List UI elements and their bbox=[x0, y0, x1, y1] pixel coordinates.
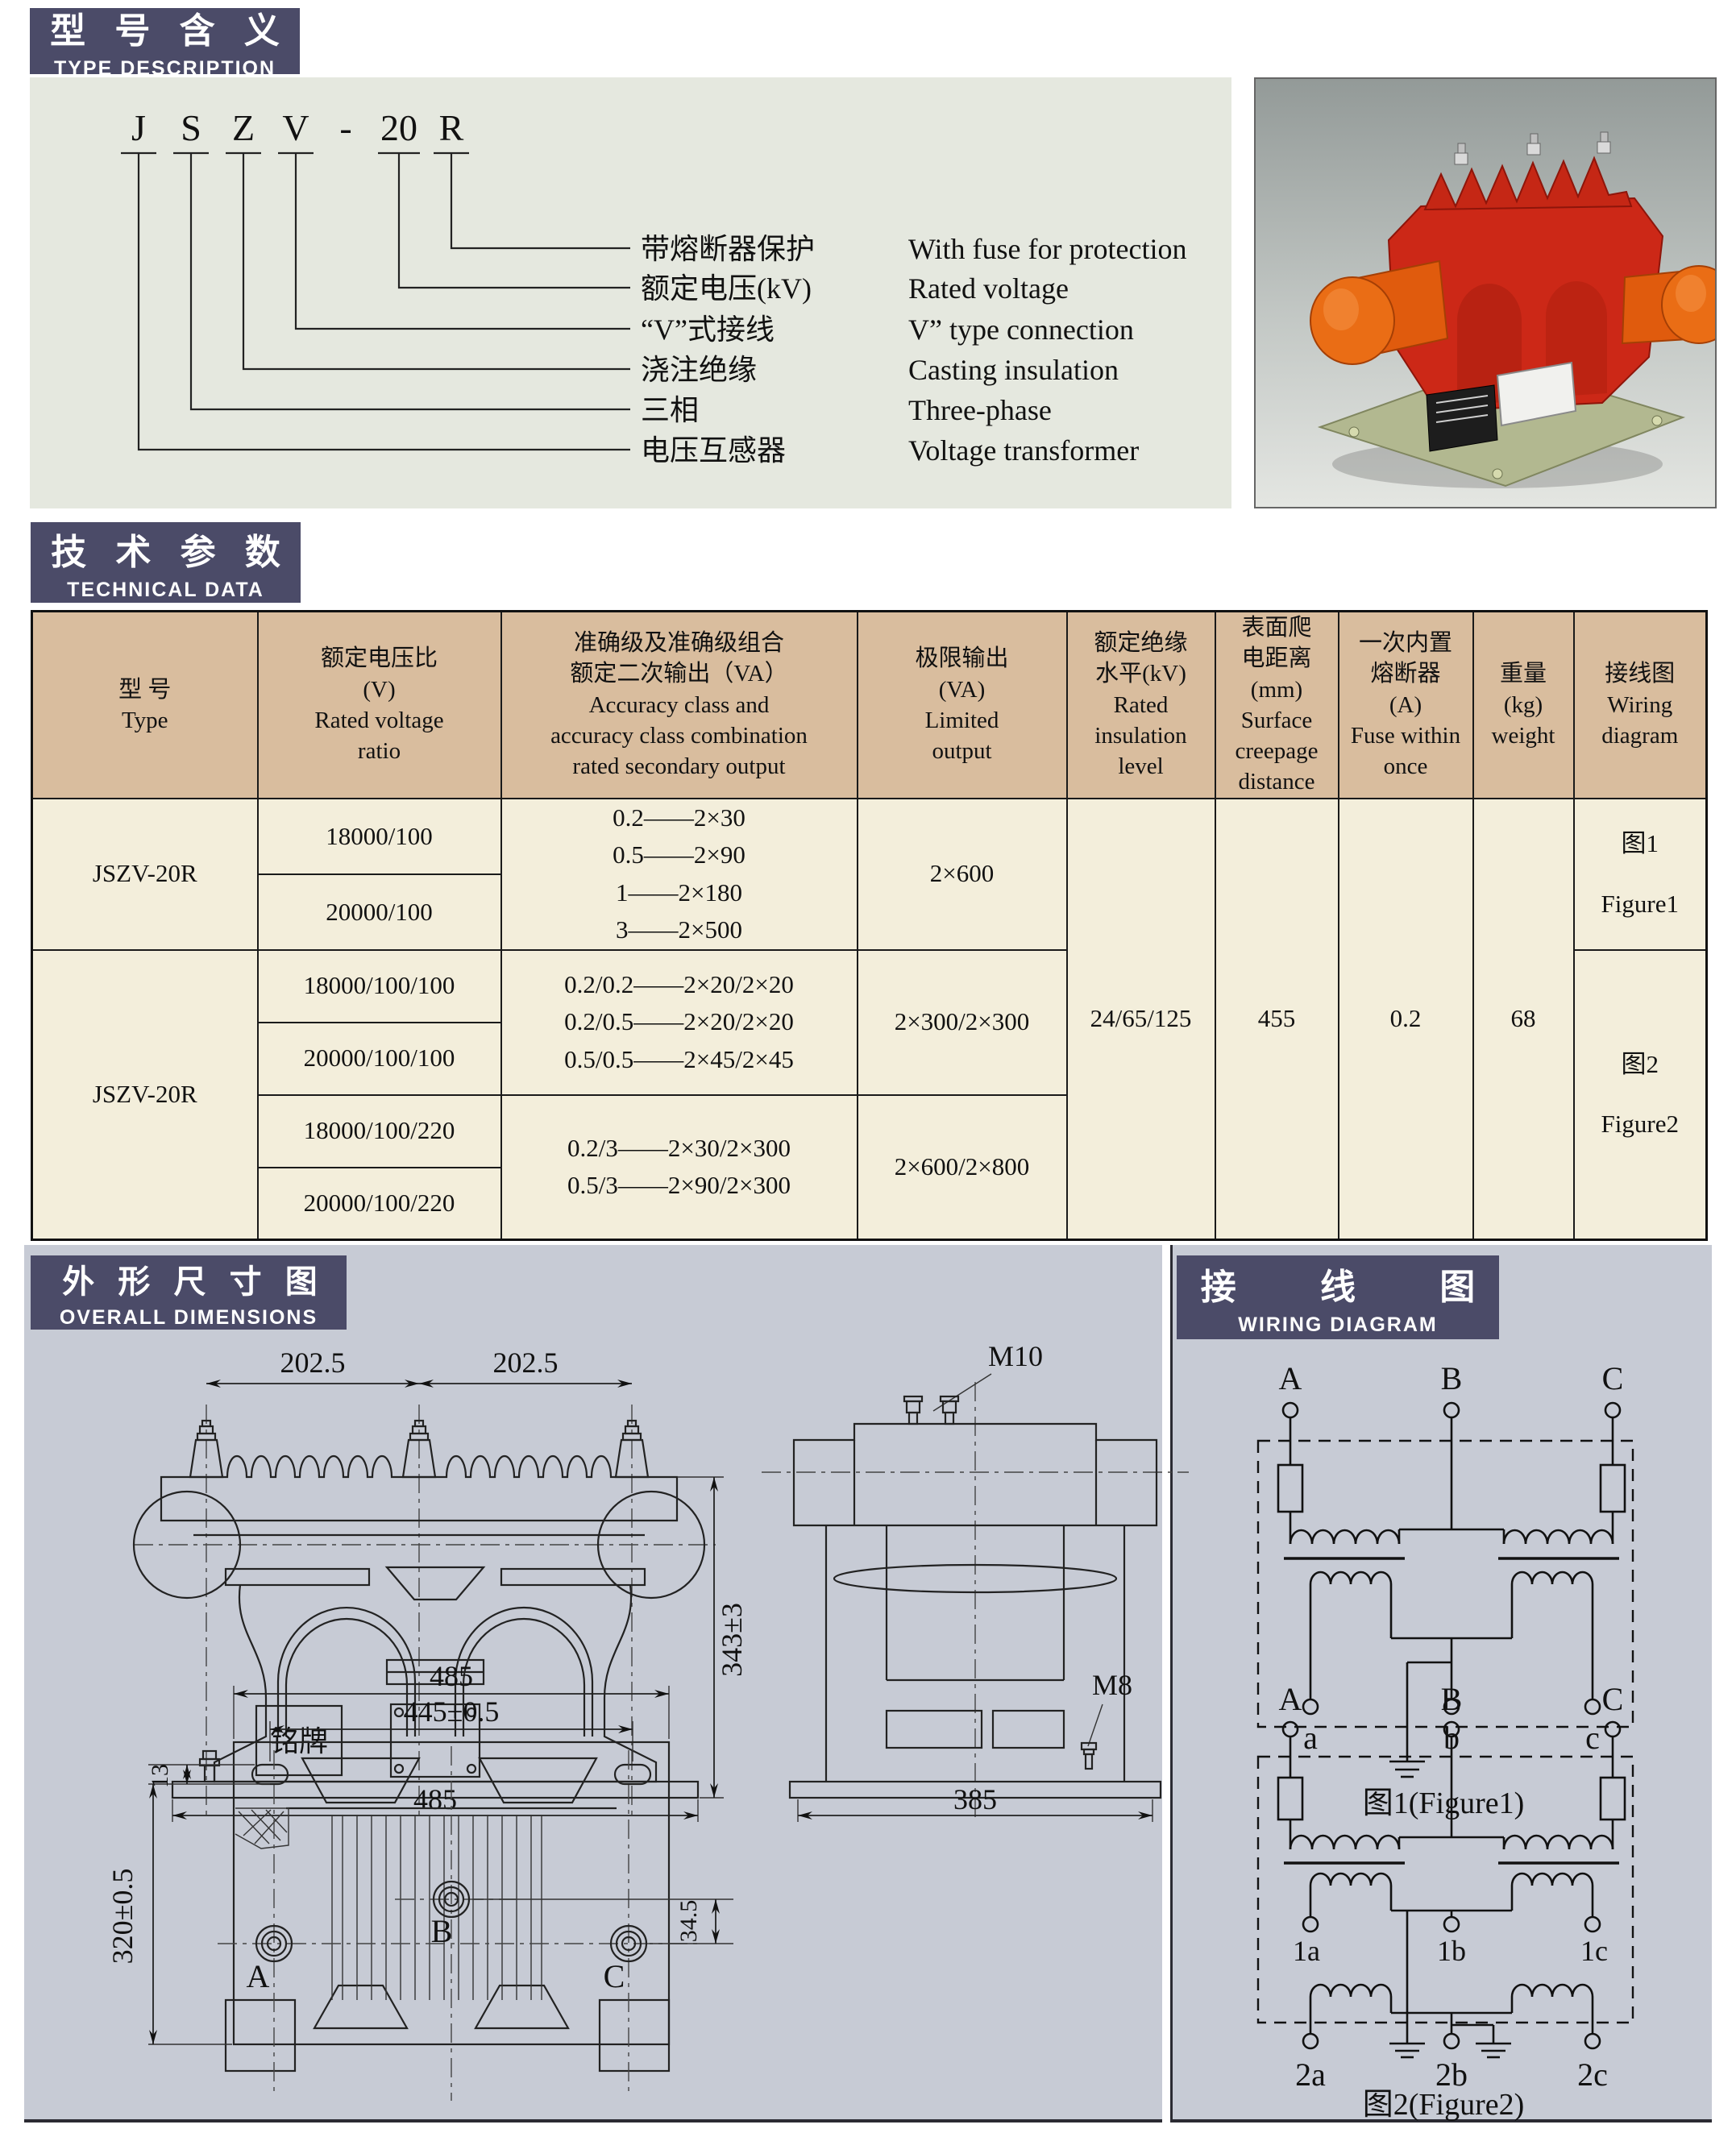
cell-wiring-1: 图1 Figure1 bbox=[1574, 799, 1707, 950]
code-char-j: J bbox=[131, 107, 146, 148]
code-connector-lines bbox=[139, 153, 630, 450]
code-label-zh: 电压互感器 bbox=[641, 434, 786, 467]
dim-385: 385 bbox=[953, 1783, 997, 1815]
bushing-cylinder-right bbox=[1622, 266, 1715, 343]
code-char-dash: - bbox=[339, 107, 351, 148]
terminal-b: B bbox=[1441, 1360, 1463, 1396]
code-label-en: Three-phase bbox=[908, 394, 1052, 426]
col-header-creepage: 表面爬 电距离 (mm) Surface creepage distance bbox=[1215, 612, 1339, 799]
table-header-row: 型 号 Type 额定电压比 (V) Rated voltage ratio 准… bbox=[32, 612, 1707, 799]
cell-ratio: 18000/100 bbox=[258, 799, 501, 875]
section-title-en: WIRING DIAGRAM bbox=[1238, 1313, 1437, 1337]
code-char-r: R bbox=[439, 107, 464, 148]
terminal-2a: 2a bbox=[1295, 2056, 1326, 2093]
side-view-drawing: M10 M8 385 bbox=[750, 1334, 1201, 1833]
body-ledges bbox=[226, 1567, 645, 1600]
technical-data-table: 型 号 Type 额定电压比 (V) Rated voltage ratio 准… bbox=[31, 610, 1708, 1241]
section-header-type-description: 型 号 含 义 TYPE DESCRIPTION bbox=[30, 8, 300, 74]
figure2-circuit bbox=[1278, 1722, 1625, 2057]
cell-accuracy-1: 0.2——2×30 0.5——2×90 1——2×180 3——2×500 bbox=[501, 799, 858, 950]
plate-outline bbox=[226, 1742, 669, 2071]
top-block bbox=[794, 1424, 1157, 1525]
hole-label-b: B bbox=[431, 1913, 453, 1949]
section-title-en: TECHNICAL DATA bbox=[67, 579, 264, 602]
cell-fuse: 0.2 bbox=[1339, 799, 1473, 1240]
product-photo bbox=[1254, 77, 1717, 508]
hole-label-a: A bbox=[247, 1958, 270, 1994]
cell-type-2: JSZV-20R bbox=[32, 950, 258, 1240]
cell-output-1: 2×600 bbox=[858, 799, 1067, 950]
base-bolt bbox=[1652, 416, 1662, 425]
dim-202-5-right: 202.5 bbox=[493, 1347, 559, 1379]
terminal-1a: 1a bbox=[1293, 1935, 1320, 1967]
figure2-dashed-enclosure bbox=[1258, 1757, 1633, 2023]
figure2-terminal-labels-top: A B C bbox=[1279, 1683, 1624, 1717]
col-header-weight: 重量 (kg) weight bbox=[1473, 612, 1574, 799]
terminal-a: A bbox=[1279, 1360, 1302, 1396]
cell-insulation: 24/65/125 bbox=[1067, 799, 1215, 1240]
section-title-zh: 接 线 图 bbox=[1164, 1258, 1512, 1309]
code-labels: 带熔断器保护 With fuse for protection 额定电压(kV)… bbox=[641, 233, 1186, 467]
cell-creepage: 455 bbox=[1215, 799, 1339, 1240]
type-description-panel: J S Z V - 20 R bbox=[30, 77, 1231, 508]
col-header-insulation: 额定绝缘 水平(kV) Rated insulation level bbox=[1067, 612, 1215, 799]
terminal-c: C bbox=[1602, 1683, 1624, 1717]
cell-output-3: 2×600/2×800 bbox=[858, 1095, 1067, 1240]
cell-accuracy-3: 0.2/3——2×30/2×300 0.5/3——2×90/2×300 bbox=[501, 1095, 858, 1240]
thread-m10-label: M10 bbox=[988, 1340, 1043, 1372]
terminal-1b: 1b bbox=[1437, 1935, 1466, 1967]
cell-ratio: 18000/100/100 bbox=[258, 950, 501, 1023]
code-char-z: Z bbox=[232, 107, 255, 148]
code-label-en: V” type connection bbox=[908, 313, 1134, 346]
dim-202-5-left: 202.5 bbox=[280, 1347, 346, 1379]
section-title-en: OVERALL DIMENSIONS bbox=[60, 1306, 318, 1330]
code-label-en: Rated voltage bbox=[908, 272, 1069, 305]
col-header-ratio: 额定电压比 (V) Rated voltage ratio bbox=[258, 612, 501, 799]
col-header-limited-output: 极限输出 (VA) Limited output bbox=[858, 612, 1067, 799]
dim-34-5: 34.5 bbox=[675, 1900, 702, 1943]
cell-output-2: 2×300/2×300 bbox=[858, 950, 1067, 1095]
code-label-en: Voltage transformer bbox=[908, 434, 1139, 467]
code-char-20: 20 bbox=[380, 107, 417, 148]
code-label-zh: 三相 bbox=[641, 394, 699, 426]
section-header-technical-data: 技 术 参 数 TECHNICAL DATA bbox=[31, 522, 301, 603]
code-label-en: With fuse for protection bbox=[908, 233, 1186, 265]
section-title-zh: 技 术 参 数 bbox=[41, 523, 290, 575]
cell-ratio: 20000/100/220 bbox=[258, 1168, 501, 1240]
cell-weight: 68 bbox=[1473, 799, 1574, 1240]
base-bolt bbox=[1493, 469, 1502, 479]
wiring-figure-2: A B C bbox=[1194, 1683, 1693, 2122]
code-label-zh: 额定电压(kV) bbox=[641, 272, 812, 305]
type-code: J S Z V - 20 R bbox=[131, 107, 464, 148]
code-label-zh: 带熔断器保护 bbox=[641, 233, 815, 265]
cell-type-1: JSZV-20R bbox=[32, 799, 258, 950]
cell-ratio: 18000/100/220 bbox=[258, 1095, 501, 1168]
type-code-diagram: J S Z V - 20 R bbox=[30, 77, 1231, 508]
figure1-terminal-labels-top: A B C bbox=[1279, 1360, 1624, 1396]
centerlines bbox=[218, 1746, 701, 2101]
terminal-c: C bbox=[1602, 1360, 1624, 1396]
code-char-s: S bbox=[181, 107, 201, 148]
bottom-view-drawing: 485 445±0.5 bbox=[97, 1662, 758, 2121]
col-header-fuse: 一次内置 熔断器 (A) Fuse within once bbox=[1339, 612, 1473, 799]
datasheet-page: 型 号 含 义 TYPE DESCRIPTION J S Z V - 20 R bbox=[0, 0, 1736, 2137]
figure2-terminal-labels-mid: 1a 1b 1c bbox=[1293, 1935, 1608, 1967]
code-label-zh: “V”式接线 bbox=[641, 313, 775, 346]
cell-ratio: 20000/100/100 bbox=[258, 1023, 501, 1095]
code-label-en: Casting insulation bbox=[908, 354, 1119, 386]
cell-accuracy-2: 0.2/0.2——2×20/2×20 0.2/0.5——2×20/2×20 0.… bbox=[501, 950, 858, 1095]
m8-bolt bbox=[1082, 1743, 1096, 1769]
product-photo-illustration bbox=[1256, 79, 1715, 507]
terminal-a: A bbox=[1279, 1683, 1302, 1717]
col-header-wiring: 接线图 Wiring diagram bbox=[1574, 612, 1707, 799]
dim-13: 13 bbox=[147, 1764, 173, 1788]
section-title-zh: 外 形 尺 寸 图 bbox=[52, 1255, 324, 1302]
col-header-accuracy: 准确级及准确级组合 额定二次输出（VA） Accuracy class and … bbox=[501, 612, 858, 799]
code-char-v: V bbox=[282, 107, 309, 148]
cell-ratio: 20000/100 bbox=[258, 874, 501, 949]
hatch-region bbox=[235, 1808, 289, 1849]
section-header-wiring-diagram: 接 线 图 WIRING DIAGRAM bbox=[1177, 1255, 1499, 1339]
cell-wiring-2: 图2 Figure2 bbox=[1574, 950, 1707, 1240]
terminal-1c: 1c bbox=[1580, 1935, 1608, 1967]
terminal-b: B bbox=[1441, 1683, 1463, 1717]
table-row: JSZV-20R 18000/100 0.2——2×30 0.5——2×90 1… bbox=[32, 799, 1707, 875]
section-header-overall-dimensions: 外 形 尺 寸 图 OVERALL DIMENSIONS bbox=[31, 1255, 347, 1330]
dim-445: 445±0.5 bbox=[404, 1695, 500, 1728]
col-header-type: 型 号 Type bbox=[32, 612, 258, 799]
fins bbox=[332, 1815, 542, 2000]
figure2-caption: 图2(Figure2) bbox=[1363, 2088, 1525, 2122]
hole-label-c: C bbox=[604, 1958, 625, 1994]
top-studs bbox=[904, 1396, 958, 1424]
section-title-zh: 型 号 含 义 bbox=[40, 2, 289, 53]
dim-320: 320±0.5 bbox=[106, 1869, 139, 1965]
base-bolt bbox=[1349, 427, 1359, 437]
dim-485-bottom: 485 bbox=[430, 1662, 473, 1692]
thread-m8-label: M8 bbox=[1092, 1669, 1132, 1701]
code-label-zh: 浇注绝缘 bbox=[641, 354, 757, 386]
terminal-2c: 2c bbox=[1577, 2056, 1608, 2093]
